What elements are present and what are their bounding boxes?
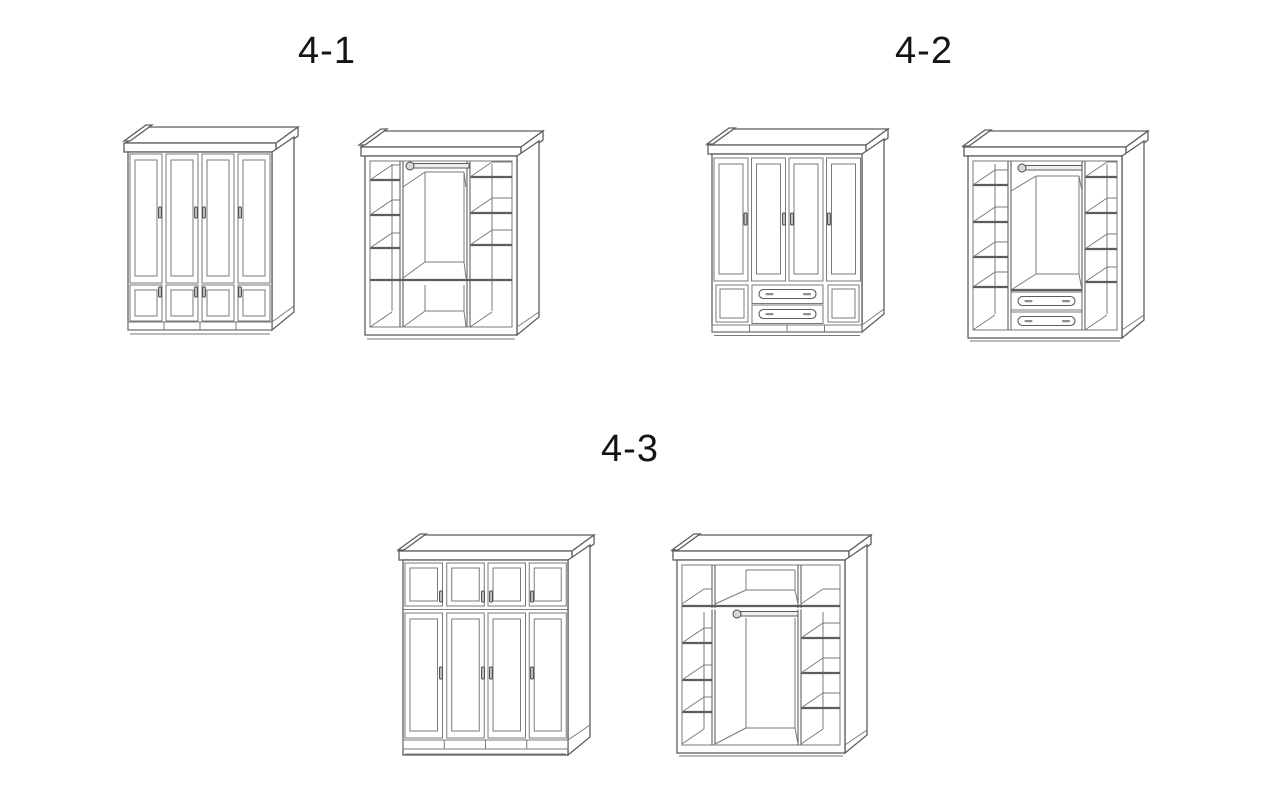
wardrobe-4-1-exterior-view: [124, 125, 298, 334]
side-panel: [568, 545, 590, 755]
door-handle: [159, 287, 162, 297]
wardrobe-4-3-exterior-view: [398, 534, 594, 755]
door-handle: [159, 207, 162, 218]
cornice: [708, 145, 866, 154]
top-face: [708, 129, 888, 145]
wardrobe-4-3-interior-view: [672, 534, 871, 756]
top-face: [964, 131, 1148, 147]
cornice: [673, 551, 849, 560]
door-handle: [531, 667, 534, 679]
carcass: [677, 560, 845, 753]
door-handle: [828, 213, 831, 225]
top-face: [126, 127, 298, 143]
door-handle: [440, 667, 443, 679]
diagram-page: 4-1 4-2 4-3: [0, 0, 1280, 800]
door-handle: [195, 287, 198, 297]
carcass: [968, 156, 1122, 338]
front-frame: [403, 560, 568, 755]
cornice: [361, 147, 521, 156]
door-handle: [490, 667, 493, 679]
door-handle: [490, 591, 493, 602]
door-handle: [531, 591, 534, 602]
wardrobe-drawings-canvas: [0, 0, 1280, 800]
door-handle: [783, 213, 786, 225]
top-face: [361, 131, 543, 147]
side-panel: [1122, 141, 1144, 338]
door-handle: [440, 591, 443, 602]
door-handle: [744, 213, 747, 225]
wardrobe-4-1-interior-view: [359, 129, 543, 339]
wardrobe-4-2-exterior-view: [707, 128, 888, 336]
side-panel: [272, 137, 294, 330]
top-face: [399, 535, 594, 551]
side-panel: [845, 545, 867, 753]
cornice: [124, 143, 276, 152]
front-frame: [128, 152, 272, 330]
door-handle: [203, 287, 206, 297]
door-handle: [195, 207, 198, 218]
wardrobe-4-2-interior-view: [963, 130, 1148, 341]
cornice: [964, 147, 1126, 156]
side-panel: [862, 139, 884, 332]
door-handle: [203, 207, 206, 218]
side-panel: [517, 141, 539, 335]
door-handle: [482, 591, 485, 602]
door-handle: [239, 287, 242, 297]
door-handle: [791, 213, 794, 225]
door-handle: [239, 207, 242, 218]
top-face: [673, 535, 871, 551]
cornice: [399, 551, 572, 560]
door-handle: [482, 667, 485, 679]
